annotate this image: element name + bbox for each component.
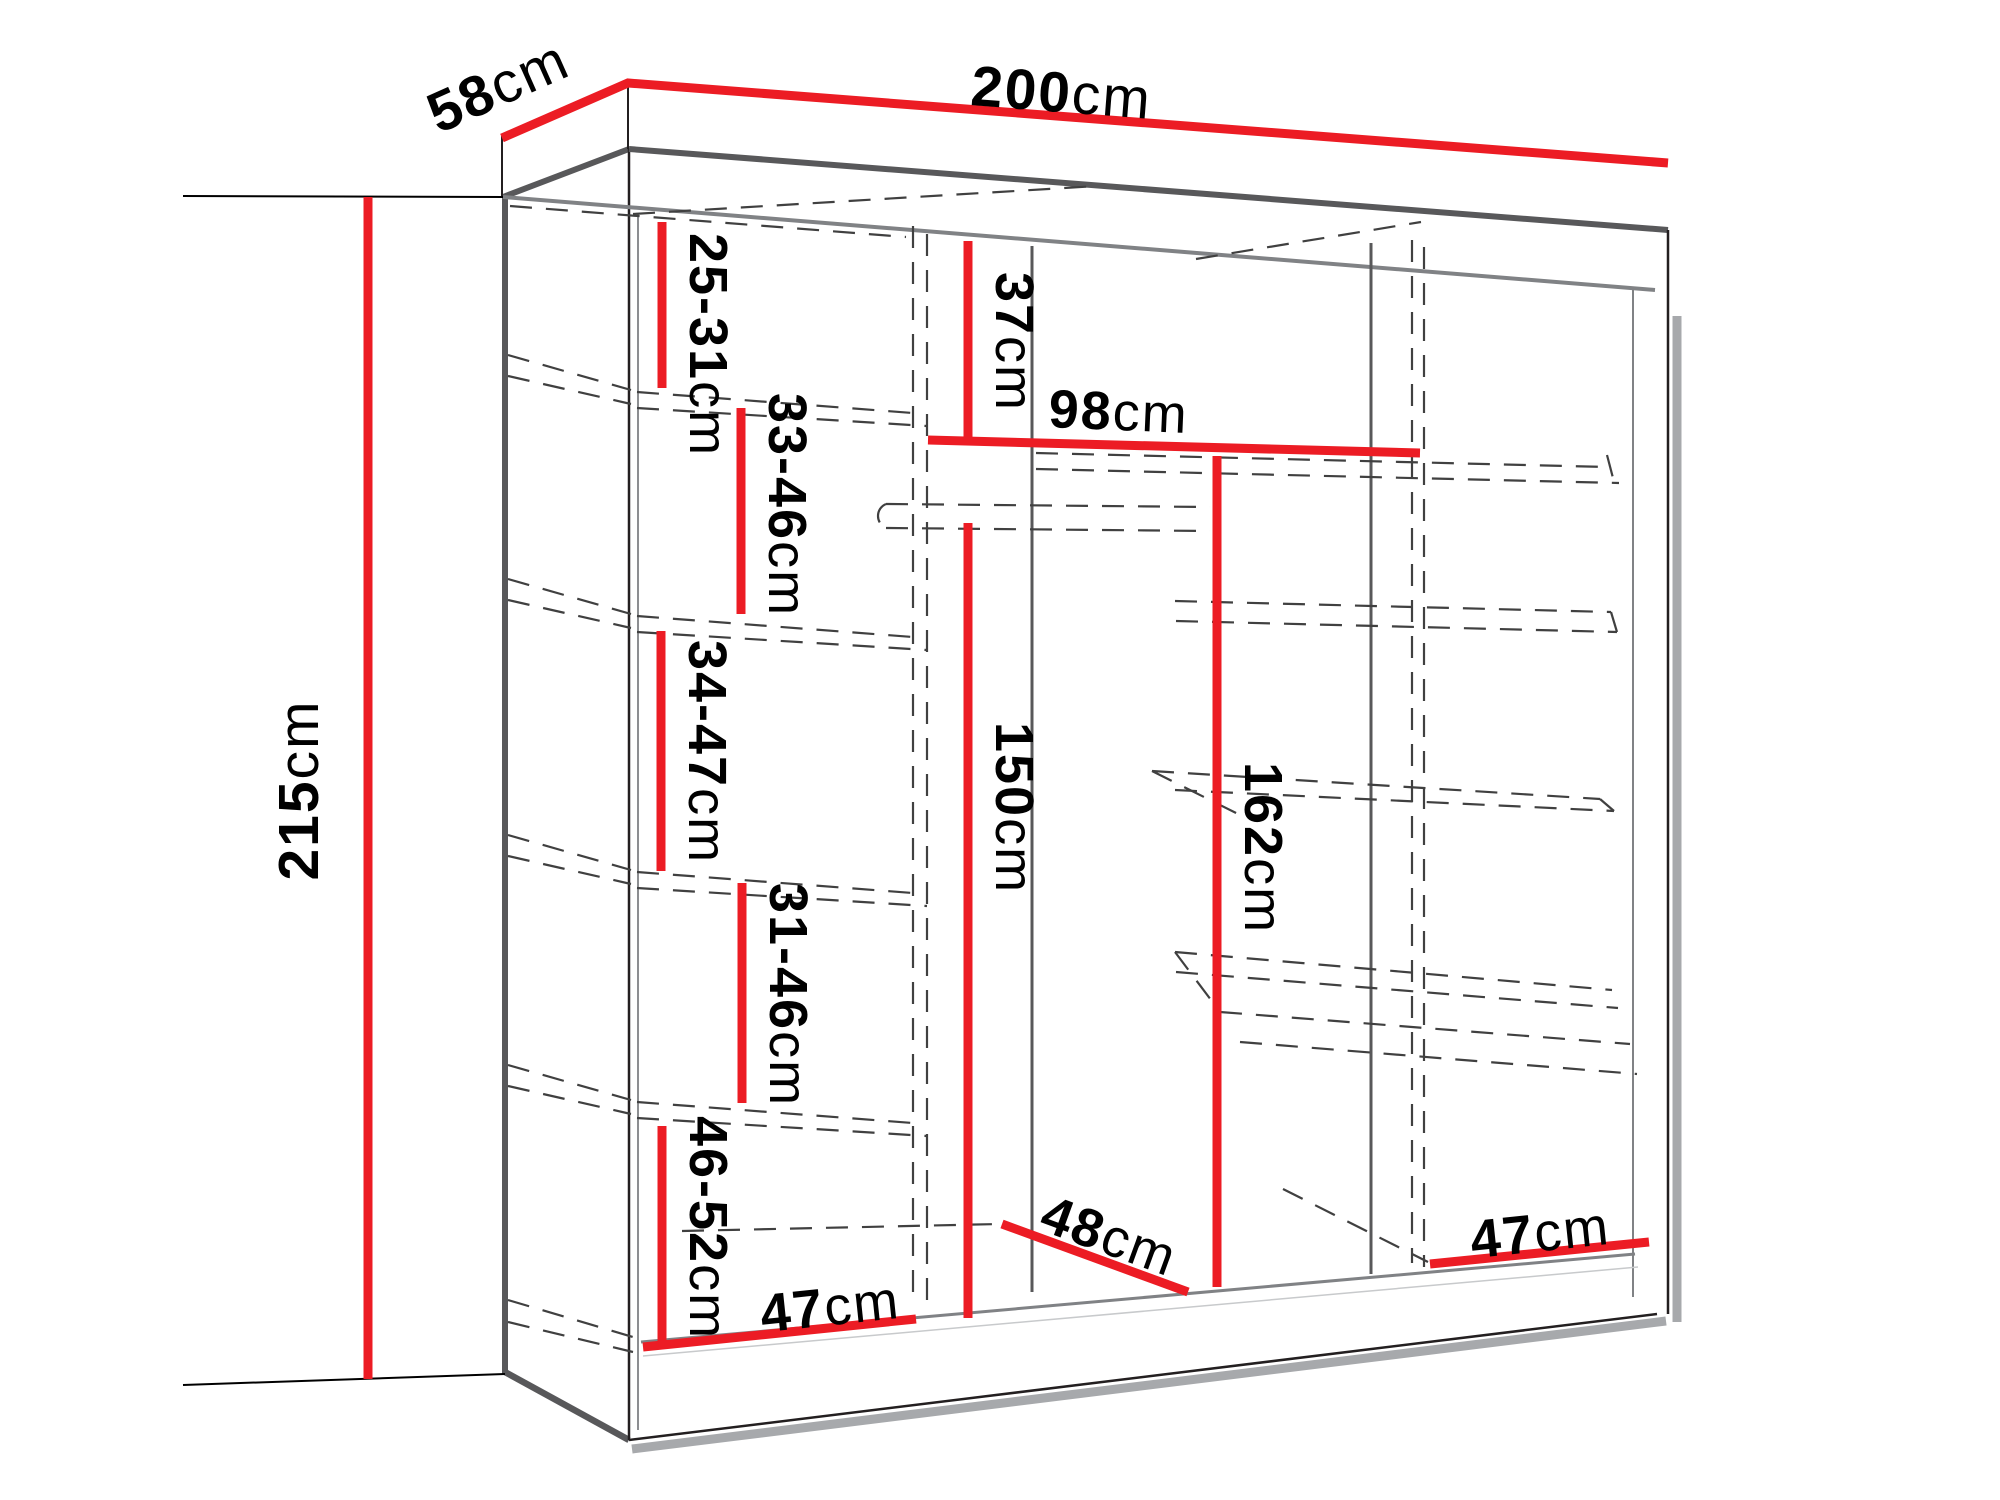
diagram-stage: 200cm 58cm 215cm 25-31cm 33-46cm 34-47cm… <box>0 0 2000 1500</box>
right-shelf-1 <box>1175 601 1617 632</box>
wardrobe-dimension-diagram: 200cm 58cm 215cm 25-31cm 33-46cm 34-47cm… <box>0 0 2000 1500</box>
ceiling-depth-diagonal-right <box>1196 222 1421 259</box>
ceiling-depth-diagonal-left <box>633 186 1098 214</box>
dimension-lines <box>183 83 1668 1385</box>
height-tick-top <box>183 196 503 197</box>
width-label: 200cm <box>969 54 1154 132</box>
middle-shelf-width-label: 98cm <box>1048 379 1191 445</box>
left-gap-2-label: 33-46cm <box>757 393 817 617</box>
floor-width-left-label: 47cm <box>757 1270 903 1344</box>
height-tick-bottom <box>183 1374 505 1385</box>
right-shelf-3 <box>1175 952 1637 1074</box>
side-panel-top-edge <box>503 149 629 197</box>
clearance-right-label: 162cm <box>1233 762 1293 934</box>
floor-depth-middle-label: 48cm <box>1033 1184 1185 1288</box>
left-bottom-depth-dashes <box>508 1300 633 1352</box>
left-gap-1-label: 25-31cm <box>678 233 738 457</box>
clearance-middle-label: 150cm <box>984 722 1044 894</box>
top-shelf-drop-label: 37cm <box>984 272 1044 412</box>
middle-top-shelf <box>1036 453 1619 483</box>
left-gap-5-label: 46-52cm <box>678 1116 738 1340</box>
left-gap-3-label: 34-47cm <box>677 640 737 864</box>
left-gap-4-label: 31-46cm <box>758 883 818 1107</box>
floor-depth-dash-right <box>1283 1189 1428 1262</box>
side-panel-bottom-edge <box>505 1372 629 1440</box>
height-label: 215cm <box>267 699 331 880</box>
depth-label: 58cm <box>418 27 579 145</box>
